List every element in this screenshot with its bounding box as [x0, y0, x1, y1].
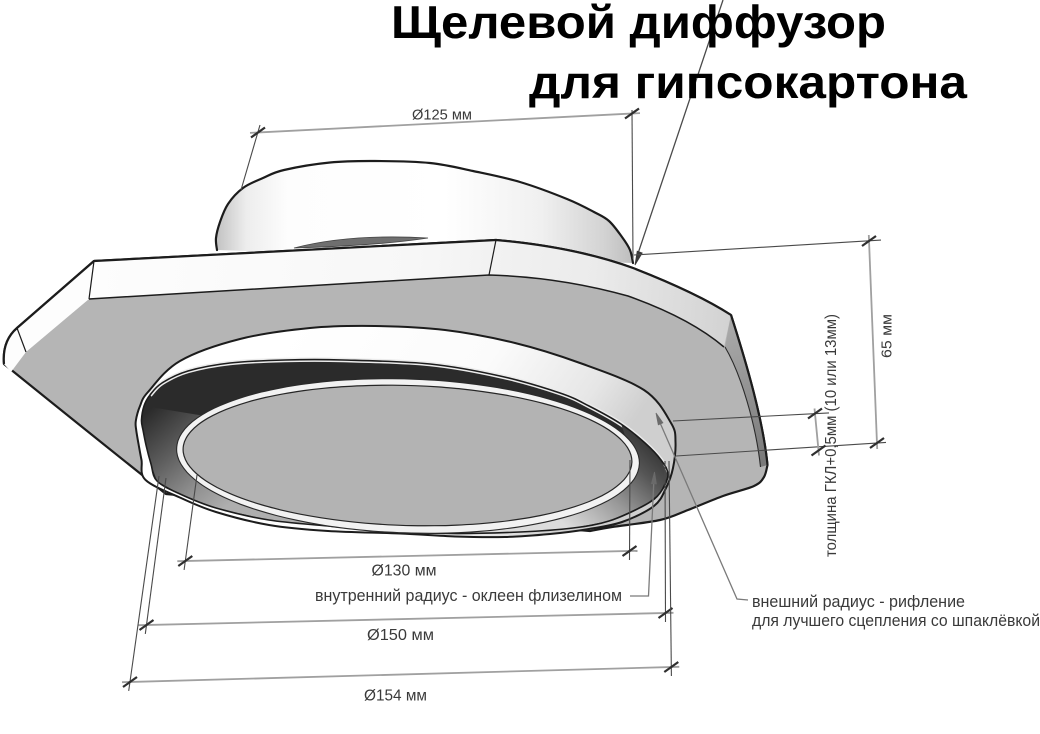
svg-text:Ø150 мм: Ø150 мм: [367, 627, 434, 644]
svg-text:Щелевой диффузор: Щелевой диффузор: [391, 0, 886, 48]
svg-text:65 мм: 65 мм: [879, 314, 896, 358]
svg-text:толщина ГКЛ+0,5мм (10 или 13мм: толщина ГКЛ+0,5мм (10 или 13мм): [823, 314, 840, 557]
svg-text:для гипсокартона: для гипсокартона: [529, 56, 967, 108]
svg-text:внутренний радиус - оклеен фли: внутренний радиус - оклеен флизелином: [315, 586, 622, 605]
svg-text:Ø125 мм: Ø125 мм: [412, 107, 472, 124]
svg-text:внешний радиус - рифление: внешний радиус - рифление: [752, 592, 965, 611]
svg-text:Ø130 мм: Ø130 мм: [372, 563, 437, 580]
svg-text:для лучшего сцепления со шпакл: для лучшего сцепления со шпаклёвкой: [752, 611, 1040, 630]
svg-text:Ø154 мм: Ø154 мм: [364, 688, 427, 705]
